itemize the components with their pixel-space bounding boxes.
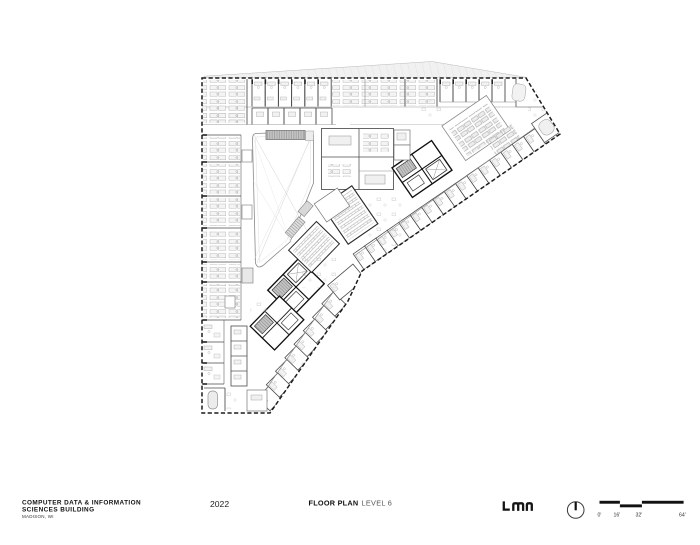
svg-text:LEVEL 6: LEVEL 6 — [362, 499, 393, 508]
svg-text:MADISON, WI: MADISON, WI — [22, 514, 54, 519]
svg-text:FLOOR PLAN: FLOOR PLAN — [309, 499, 359, 508]
svg-text:COMPUTER DATA & INFORMATION: COMPUTER DATA & INFORMATION — [22, 500, 141, 507]
svg-text:64': 64' — [679, 513, 686, 519]
svg-text:SCIENCES BUILDING: SCIENCES BUILDING — [22, 507, 94, 514]
svg-text:2022: 2022 — [210, 499, 229, 509]
svg-text:32': 32' — [636, 513, 643, 519]
svg-text:16': 16' — [614, 513, 621, 519]
svg-text:0': 0' — [598, 513, 602, 519]
